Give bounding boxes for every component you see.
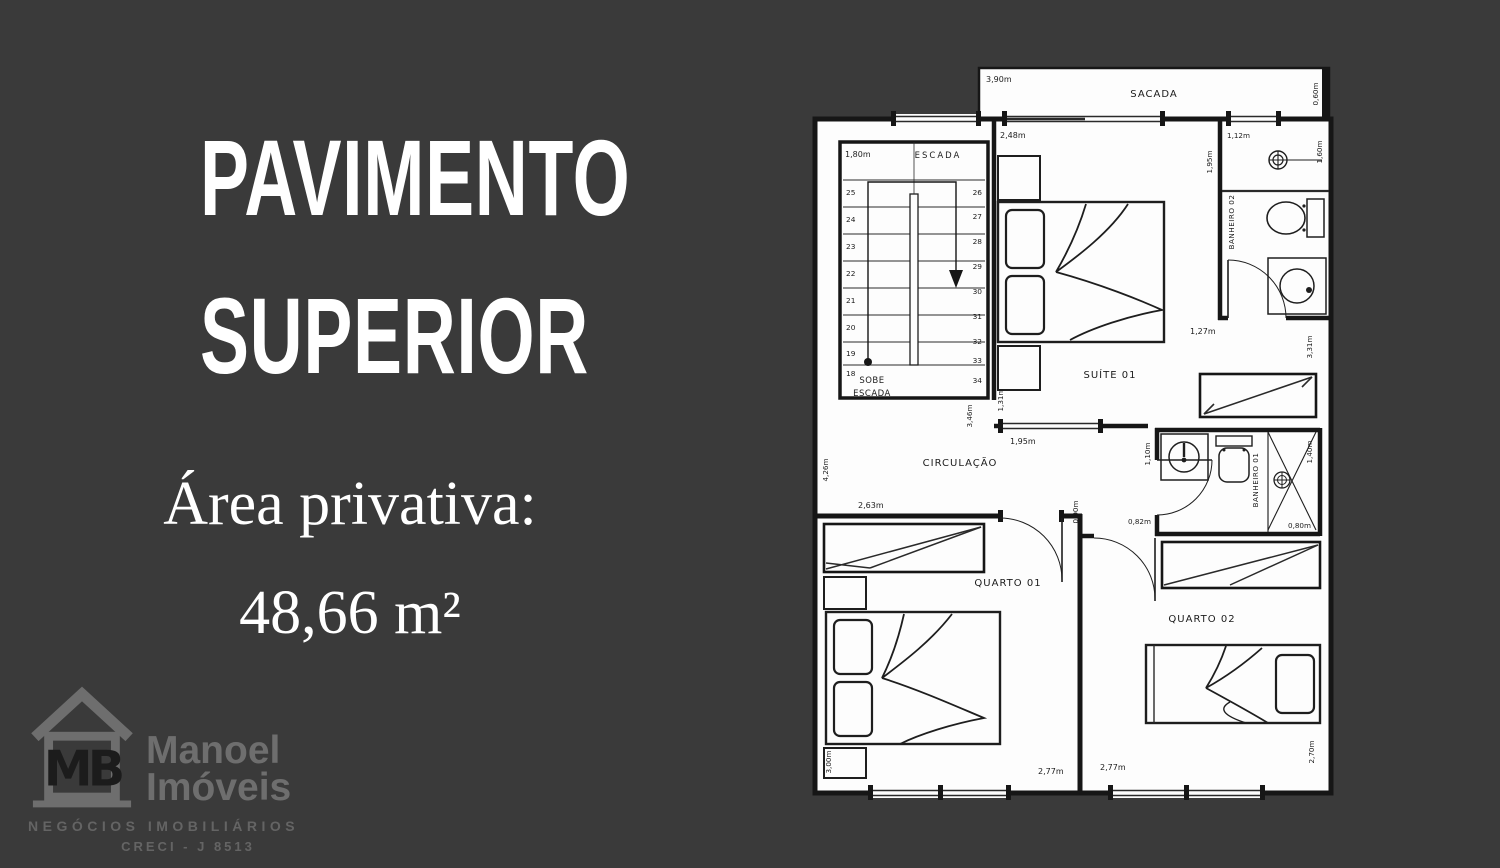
dim-label: 3,90m xyxy=(986,75,1012,84)
nightstand xyxy=(824,577,866,609)
dim-label: 1,27m xyxy=(1190,327,1216,336)
step-number: 18 xyxy=(846,369,856,378)
area-value: 48,66 m² xyxy=(80,578,620,649)
dim-label: 2,77m xyxy=(1038,767,1064,776)
dim-label: 3,31m xyxy=(1305,335,1314,358)
dim-label: 2,48m xyxy=(1000,131,1026,140)
step-number: 22 xyxy=(846,269,855,278)
nightstand xyxy=(998,156,1040,200)
logo-names: Manoel Imóveis xyxy=(146,732,291,812)
sink-icon xyxy=(1161,434,1208,480)
dim-label: 1,31m xyxy=(996,388,1005,411)
area-label: Área privativa: xyxy=(80,470,620,538)
title-line-1: PAVIMENTO xyxy=(200,124,540,232)
logo-name-line2: Imóveis xyxy=(146,769,291,806)
step-number: 24 xyxy=(846,215,856,224)
room-label: BANHEIRO 01 xyxy=(1251,453,1260,508)
dim-label: 1,80m xyxy=(845,150,871,159)
floor-plan-svg: 3,90m SACADA 0,60m xyxy=(810,60,1340,802)
dim-label: 4,26m xyxy=(821,458,830,481)
toilet-icon xyxy=(1267,199,1324,237)
room-label: SUÍTE 01 xyxy=(1084,368,1137,381)
step-number: 20 xyxy=(846,323,856,332)
room-label: BANHEIRO 02 xyxy=(1227,195,1236,250)
dim-label: 1,95m xyxy=(1205,150,1214,173)
step-number: 28 xyxy=(973,237,983,246)
dim-label: 0,82m xyxy=(1128,517,1151,526)
toilet-icon xyxy=(1216,436,1252,482)
room-label: SACADA xyxy=(1130,89,1177,100)
room-label: CIRCULAÇÃO xyxy=(923,456,998,469)
dim-label: 1,12m xyxy=(1227,131,1250,140)
logo-house-icon: MB xyxy=(28,684,136,812)
step-number: 21 xyxy=(846,296,856,305)
room-label: ESCADA xyxy=(853,389,891,399)
step-number: 32 xyxy=(973,337,982,346)
step-number: 26 xyxy=(973,188,983,197)
dim-label: 3,46m xyxy=(965,404,974,427)
quarto2-bed xyxy=(1146,645,1320,723)
stair-stringer xyxy=(910,194,918,365)
step-number: 30 xyxy=(973,287,983,296)
dim-label: 1,10m xyxy=(1143,442,1152,465)
step-number: 33 xyxy=(973,356,983,365)
floor-plan: 3,90m SACADA 0,60m xyxy=(810,60,1340,802)
page-title: PAVIMENTO SUPERIOR xyxy=(120,124,620,390)
step-number: 34 xyxy=(973,376,983,385)
room-label: QUARTO 02 xyxy=(1168,614,1235,625)
logo-monogram: MB xyxy=(44,739,122,797)
step-number: 23 xyxy=(846,242,856,251)
dim-label: 2,70m xyxy=(1307,740,1316,763)
logo-creci: CRECI - J 8513 xyxy=(28,839,348,854)
stair-numbers-right: 26 27 28 29 30 31 32 33 34 xyxy=(973,188,983,385)
title-line-2: SUPERIOR xyxy=(200,282,540,390)
dim-label: 2,77m xyxy=(1100,763,1126,772)
dim-label: 3,00m xyxy=(824,750,833,773)
logo-name-line1: Manoel xyxy=(146,732,291,769)
logo-tagline: NEGÓCIOS IMOBILIÁRIOS xyxy=(28,818,348,834)
dim-label: 0,60m xyxy=(1311,82,1320,105)
nightstand xyxy=(998,346,1040,390)
step-number: 29 xyxy=(973,262,983,271)
logo-top-row: MB Manoel Imóveis xyxy=(28,684,348,812)
step-number: 31 xyxy=(973,312,983,321)
step-number: 19 xyxy=(846,349,856,358)
step-number: 25 xyxy=(846,188,856,197)
dim-label: 1,95m xyxy=(1010,437,1036,446)
room-label: QUARTO 01 xyxy=(974,578,1041,589)
dim-label: 0,80m xyxy=(1288,521,1311,530)
step-number: 27 xyxy=(973,212,983,221)
room-label: ESCADA xyxy=(915,151,962,161)
dim-label: 1,40m xyxy=(1305,440,1314,463)
quarto1-bed xyxy=(826,612,1000,744)
company-logo: MB Manoel Imóveis NEGÓCIOS IMOBILIÁRIOS … xyxy=(28,684,348,854)
room-label: SOBE xyxy=(859,376,884,386)
suite-bed xyxy=(998,202,1164,342)
dim-label: 2,63m xyxy=(858,501,884,510)
private-area-block: Área privativa: 48,66 m² xyxy=(80,470,620,649)
